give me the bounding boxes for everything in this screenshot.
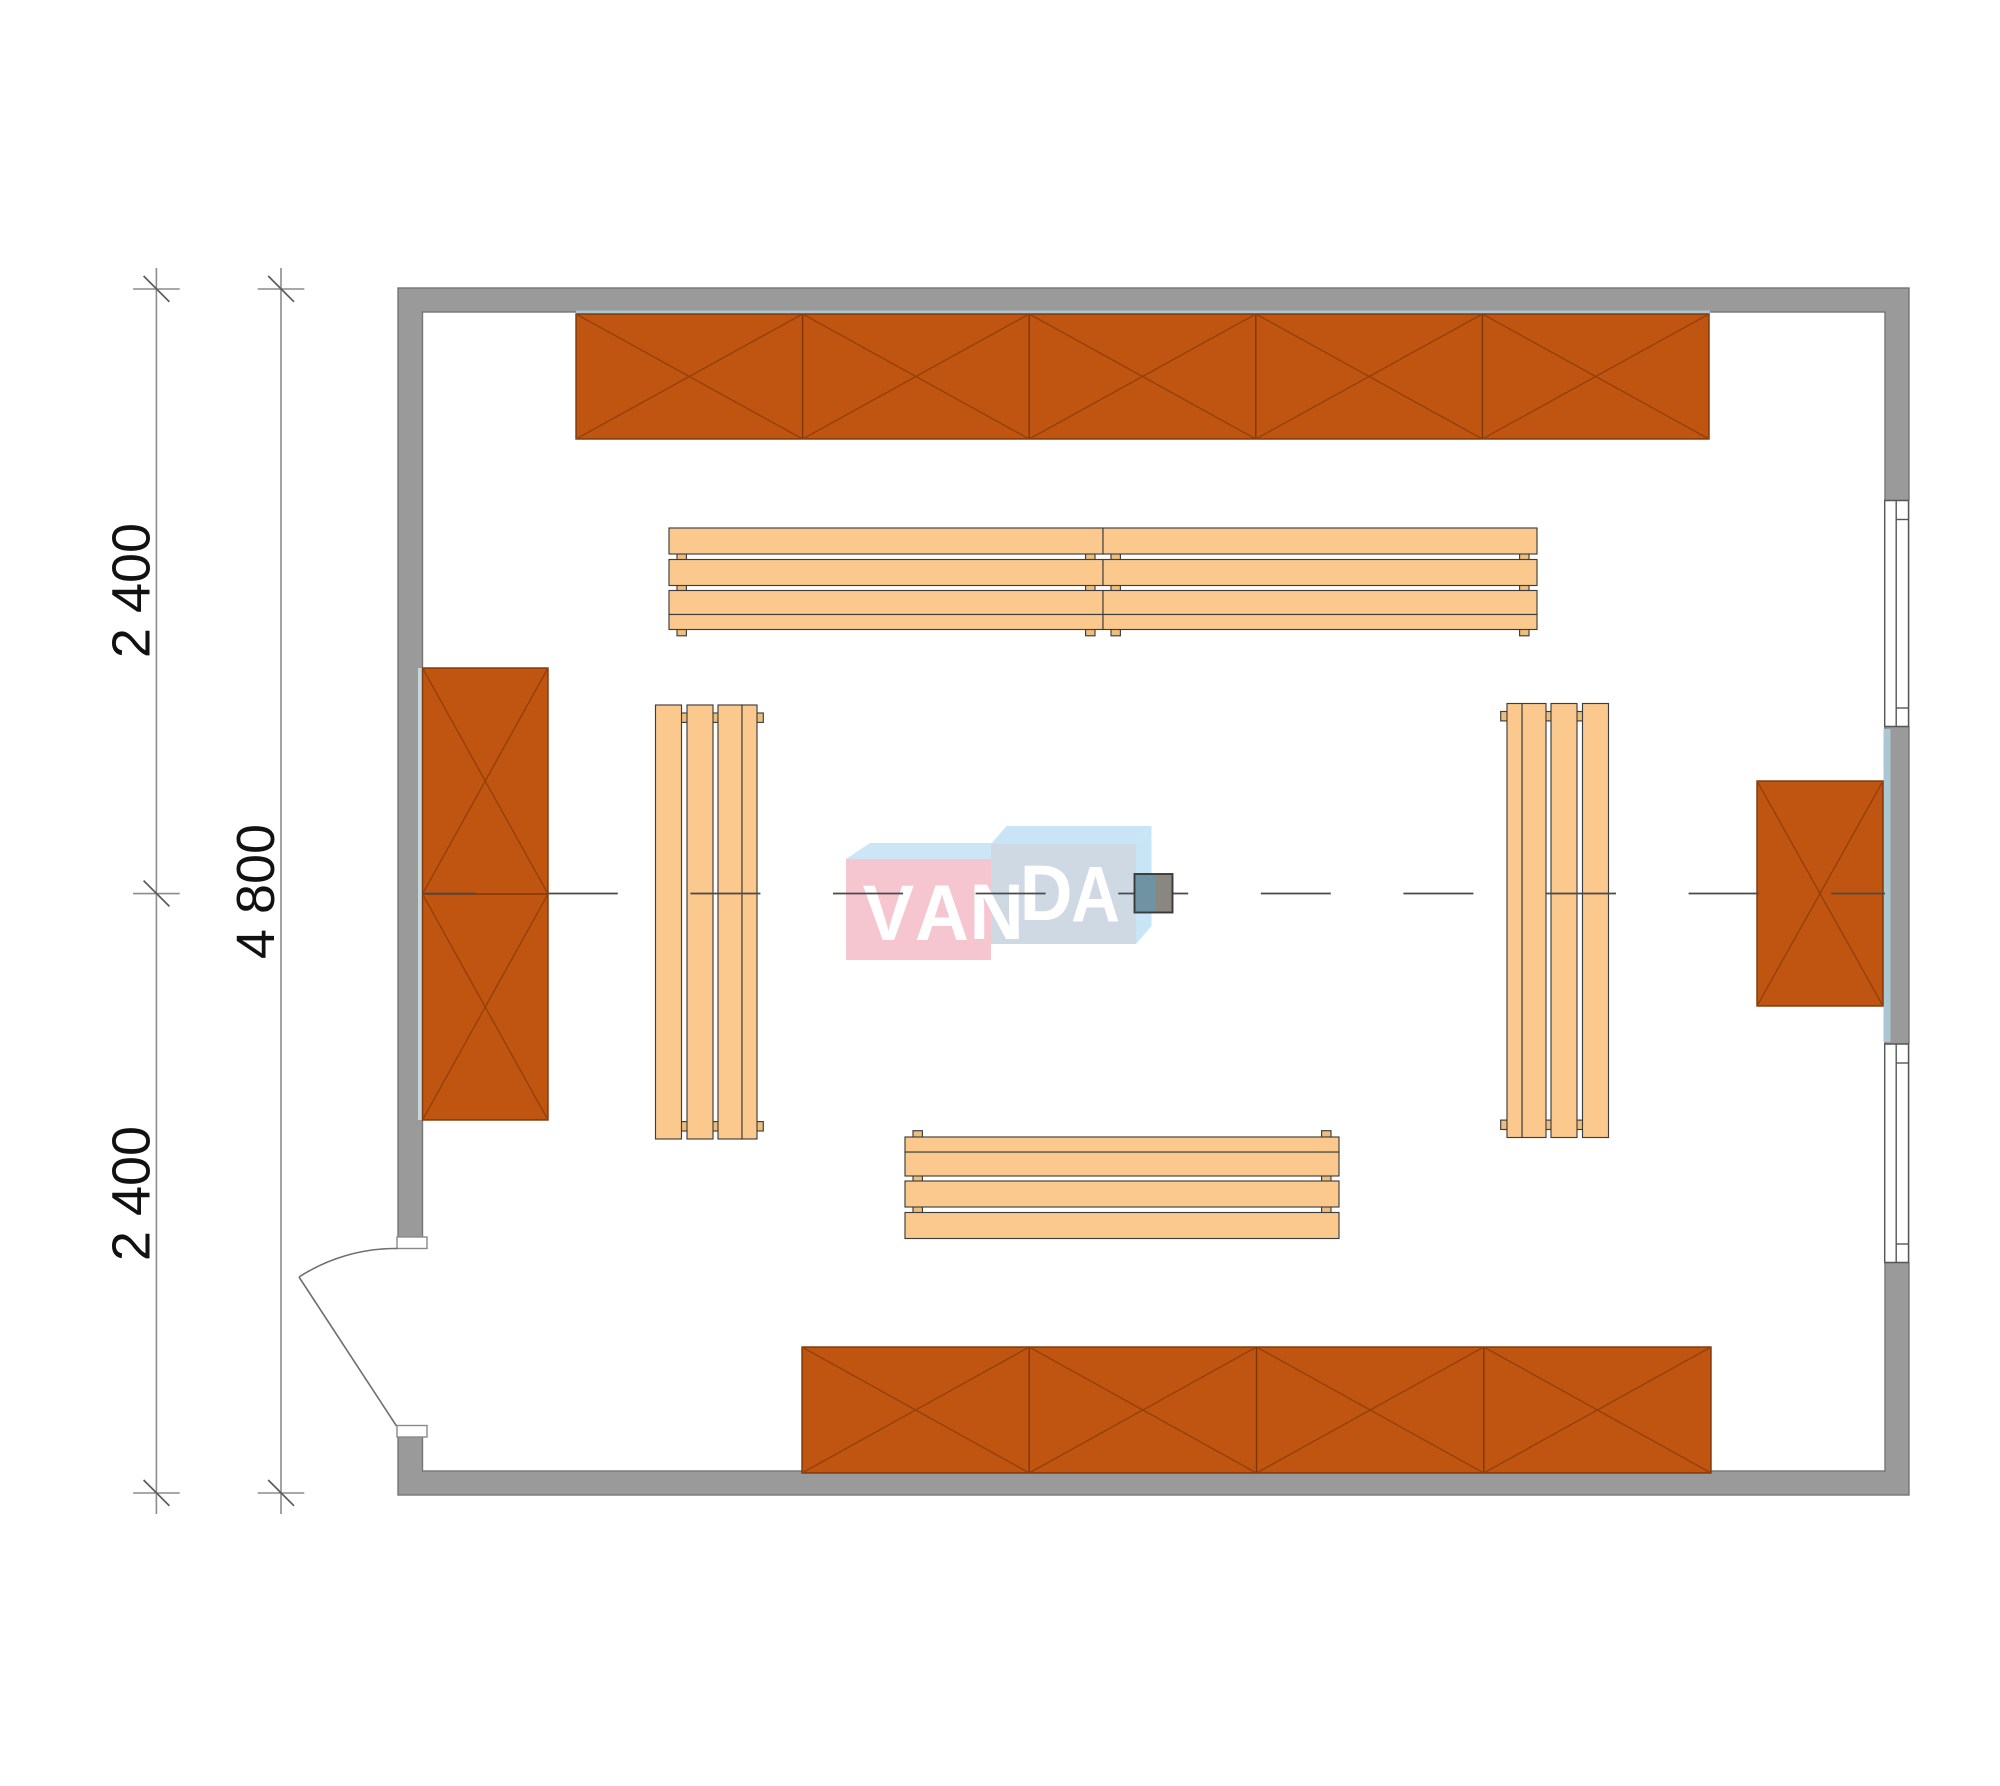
svg-text:2 400: 2 400 [102, 1126, 162, 1261]
svg-text:A: A [915, 869, 969, 957]
svg-text:V: V [863, 869, 915, 957]
svg-text:A: A [1071, 851, 1120, 939]
svg-text:4 800: 4 800 [226, 824, 286, 959]
svg-text:N: N [970, 868, 1024, 956]
svg-text:2 400: 2 400 [102, 523, 162, 658]
